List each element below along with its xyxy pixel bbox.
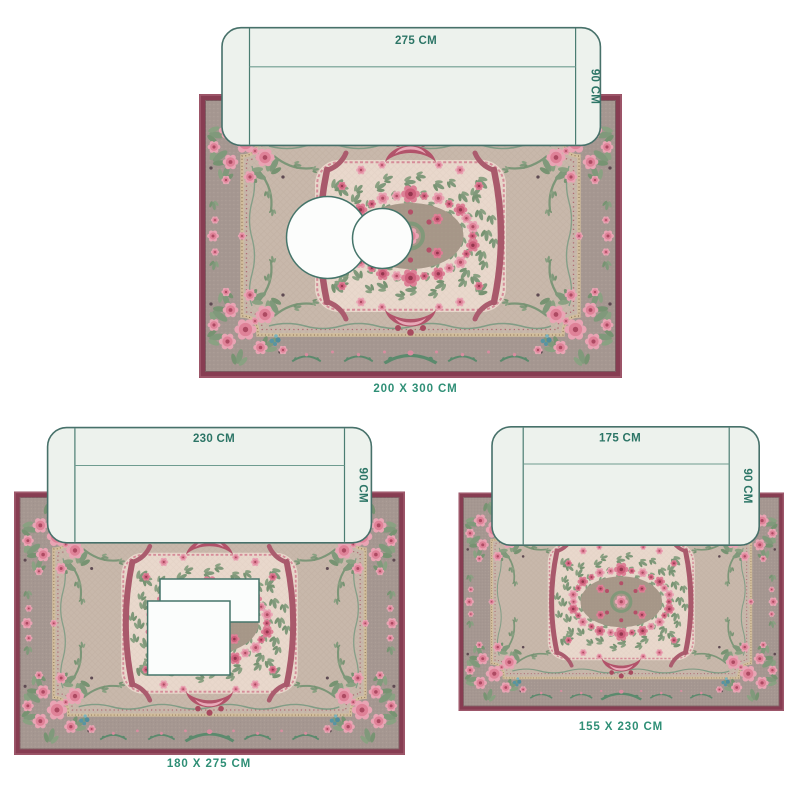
svg-text:90 CM: 90 CM [357, 468, 369, 503]
svg-text:175 CM: 175 CM [599, 433, 641, 445]
svg-text:90 CM: 90 CM [589, 69, 601, 104]
svg-text:155 X 230 CM: 155 X 230 CM [579, 721, 663, 733]
svg-text:90 CM: 90 CM [741, 468, 753, 503]
svg-text:275 CM: 275 CM [395, 35, 437, 47]
svg-text:180 X 275 CM: 180 X 275 CM [167, 758, 251, 770]
svg-text:200 X 300 CM: 200 X 300 CM [373, 383, 457, 395]
svg-text:230 CM: 230 CM [193, 433, 235, 445]
